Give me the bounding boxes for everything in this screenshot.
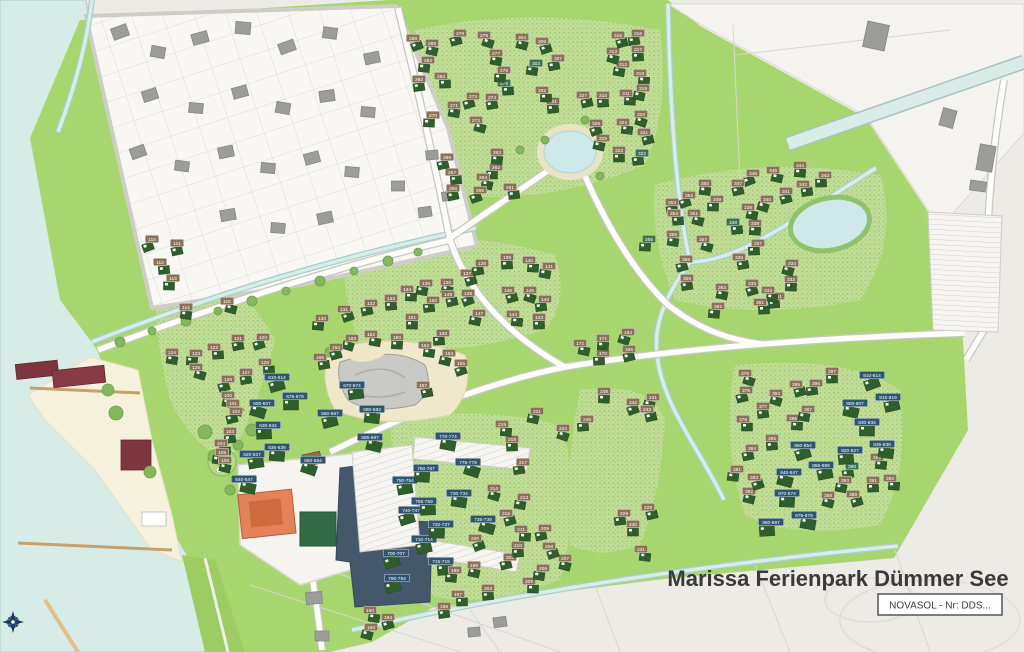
svg-text:209: 209 [541,526,549,532]
svg-text:194: 194 [384,615,392,621]
svg-text:346: 346 [749,171,757,177]
svg-text:134: 134 [403,287,411,293]
svg-text:267: 267 [448,170,456,176]
svg-text:338: 338 [751,221,759,227]
svg-text:310: 310 [599,93,607,99]
svg-text:218: 218 [508,437,516,443]
svg-text:274: 274 [488,95,496,101]
svg-text:610-614: 610-614 [268,375,286,381]
svg-text:157: 157 [419,383,427,389]
svg-text:229: 229 [620,511,628,517]
svg-text:870-874: 870-874 [778,491,796,497]
tree [383,256,393,266]
svg-text:152: 152 [421,343,429,349]
svg-text:219: 219 [498,422,506,428]
house-marker: 391 [866,476,880,492]
svg-text:840-847: 840-847 [780,470,798,476]
svg-text:397: 397 [828,369,836,375]
tree [541,136,549,144]
house-marker: 274 [485,93,499,110]
svg-text:217: 217 [519,460,527,466]
gray-building [426,150,439,160]
svg-text:143: 143 [535,315,543,321]
svg-text:103: 103 [226,429,234,435]
svg-text:356: 356 [669,232,677,238]
house-marker: 397 [825,367,839,383]
house-marker: 271 [447,101,461,118]
svg-text:735-739: 735-739 [474,517,492,523]
gray-building [315,631,329,641]
svg-text:128: 128 [261,360,269,366]
svg-text:388: 388 [824,493,832,499]
svg-text:800-807: 800-807 [846,401,864,407]
svg-text:288: 288 [409,36,417,42]
svg-text:248: 248 [600,389,608,395]
house-marker: 218 [505,435,519,451]
svg-text:121: 121 [234,336,242,342]
gray-building [271,222,286,233]
house-marker: 359 [680,274,694,291]
svg-text:270: 270 [429,113,437,119]
svg-text:222: 222 [559,426,567,432]
tree [596,172,604,180]
svg-text:730-734: 730-734 [450,491,468,497]
tree [225,485,235,495]
svg-text:660-667: 660-667 [321,411,339,417]
tree [148,327,156,335]
tree [282,287,290,295]
gray-building [361,106,376,117]
svg-text:390: 390 [848,464,856,470]
svg-text:101: 101 [229,401,237,407]
svg-text:354: 354 [670,211,678,217]
house-marker: 139 [500,253,514,269]
svg-text:102: 102 [232,409,240,415]
svg-text:348: 348 [729,220,737,226]
svg-text:339: 339 [744,205,752,211]
svg-text:351: 351 [690,211,698,217]
gray-building [468,627,481,637]
svg-text:311: 311 [622,91,630,97]
house-marker: 385 [765,434,779,450]
svg-text:392: 392 [886,476,894,482]
svg-text:133: 133 [387,296,395,302]
svg-text:203: 203 [484,586,492,592]
svg-text:243: 243 [643,407,651,413]
svg-text:355: 355 [645,237,653,243]
svg-text:323: 323 [615,148,623,154]
svg-text:147: 147 [475,311,483,317]
svg-text:313: 313 [609,49,617,55]
svg-text:158: 158 [439,331,447,337]
svg-text:120: 120 [259,335,267,341]
svg-text:261: 261 [506,185,514,191]
svg-text:875-879: 875-879 [795,513,813,519]
svg-text:343: 343 [821,173,829,179]
svg-text:715-719: 715-719 [432,559,450,565]
svg-text:675-679: 675-679 [286,394,304,400]
novasol-code-text: NOVASOL - Nr: DDS... [889,601,991,612]
house-marker: 377 [756,402,770,418]
svg-text:340: 340 [763,197,771,203]
svg-text:378: 378 [739,417,747,423]
svg-text:198: 198 [451,568,459,574]
svg-text:279: 279 [456,31,464,37]
svg-text:815-819: 815-819 [879,395,897,401]
svg-text:322: 322 [638,151,646,157]
svg-text:111: 111 [173,241,181,247]
svg-text:144: 144 [509,312,517,318]
gray-building [261,162,276,173]
house-marker: 248 [597,387,611,403]
svg-text:230: 230 [629,522,637,528]
gray-building [322,27,337,40]
house-marker: 114 [179,303,193,320]
svg-text:315: 315 [614,33,622,39]
svg-text:100: 100 [224,393,232,399]
svg-text:830-834: 830-834 [858,420,876,426]
svg-text:283: 283 [437,74,445,80]
svg-text:139: 139 [503,255,511,261]
svg-text:326: 326 [592,121,600,127]
svg-text:142: 142 [541,297,549,303]
gray-building [418,206,432,218]
svg-text:349: 349 [713,197,721,203]
svg-text:164: 164 [332,345,340,351]
svg-text:148: 148 [464,291,472,297]
svg-text:375: 375 [741,371,749,377]
svg-text:391: 391 [869,478,877,484]
svg-text:171: 171 [599,336,607,342]
gray-building [220,208,237,221]
house-marker: 151 [405,313,419,329]
gray-building [150,45,166,58]
svg-text:344: 344 [796,163,804,169]
svg-text:221: 221 [533,409,541,415]
svg-text:106: 106 [221,458,229,464]
svg-text:325: 325 [599,136,607,142]
svg-text:207: 207 [561,556,569,562]
tree [414,248,422,256]
gray-building [493,616,507,628]
svg-text:154: 154 [445,351,453,357]
svg-text:266: 266 [449,186,457,192]
svg-text:359: 359 [683,276,691,282]
svg-text:264: 264 [479,175,487,181]
svg-text:630-634: 630-634 [259,423,277,429]
svg-text:242: 242 [629,400,637,406]
svg-text:123: 123 [192,351,200,357]
tree [581,116,589,124]
svg-text:228: 228 [644,505,652,511]
svg-text:362: 362 [714,304,722,310]
svg-text:162: 162 [367,332,375,338]
svg-text:770-774: 770-774 [439,434,457,440]
svg-text:190: 190 [366,608,374,614]
tree [115,337,125,347]
svg-text:335: 335 [748,281,756,287]
svg-text:820-827: 820-827 [841,448,859,454]
svg-text:363: 363 [718,285,726,291]
svg-text:720-727: 720-727 [432,522,450,528]
svg-text:342: 342 [799,182,807,188]
svg-text:600-607: 600-607 [253,401,271,407]
svg-text:211: 211 [517,527,525,533]
gray-building [174,160,189,172]
svg-text:271: 271 [450,103,458,109]
house-marker: 127 [239,368,253,385]
svg-text:278: 278 [480,33,488,39]
svg-text:318: 318 [636,71,644,77]
tree [315,276,325,286]
tree [247,296,257,306]
svg-text:383: 383 [750,475,758,481]
svg-text:210: 210 [514,543,522,549]
house-marker: 350 [698,179,712,196]
svg-text:155: 155 [457,361,465,367]
svg-text:755-759: 755-759 [415,499,433,505]
house-marker: 263 [490,148,504,164]
svg-text:273: 273 [469,94,477,100]
svg-text:635-639: 635-639 [268,445,286,451]
svg-text:860-867: 860-867 [762,520,780,526]
svg-text:353: 353 [668,200,676,206]
svg-text:670-674: 670-674 [343,383,361,389]
svg-text:336: 336 [735,255,743,261]
svg-text:272: 272 [472,118,480,124]
svg-text:332: 332 [787,277,795,283]
svg-text:141: 141 [545,264,553,270]
svg-text:130: 130 [318,316,326,322]
svg-text:333: 333 [764,288,772,294]
svg-text:131: 131 [340,307,348,313]
svg-text:700-707: 700-707 [387,551,405,557]
svg-text:376: 376 [742,388,750,394]
map-title: Marissa Ferienpark Dümmer See [667,566,1008,591]
svg-text:231: 231 [637,547,645,553]
svg-text:124: 124 [168,350,176,356]
svg-text:306: 306 [538,39,546,45]
svg-text:384: 384 [748,446,756,452]
eventcenter-building [300,512,336,546]
svg-text:324: 324 [619,120,627,126]
house-marker: 356 [666,230,680,247]
svg-text:105: 105 [218,450,226,456]
gray-building [235,21,251,34]
svg-text:387: 387 [804,407,812,413]
svg-text:160: 160 [393,335,401,341]
house-marker: 317 [631,45,645,61]
svg-text:241: 241 [649,395,657,401]
svg-text:775-779: 775-779 [459,460,477,466]
svg-text:810-814: 810-814 [863,373,881,379]
house-marker: 230 [626,520,640,536]
svg-text:312: 312 [619,62,627,68]
svg-text:319: 319 [639,86,647,92]
gray-building [189,102,204,113]
svg-text:246: 246 [583,417,591,423]
svg-text:640-647: 640-647 [235,477,253,483]
svg-text:199: 199 [470,563,478,569]
svg-text:137: 137 [463,271,471,277]
house-marker: 171 [596,334,610,350]
svg-text:170: 170 [599,351,607,357]
svg-text:151: 151 [408,315,416,321]
svg-text:215: 215 [502,511,510,517]
svg-text:298: 298 [443,155,451,161]
svg-text:284: 284 [424,58,432,64]
svg-text:197: 197 [454,592,462,598]
svg-text:113: 113 [169,276,177,282]
house-marker: 210 [511,541,525,557]
wassersport-building [142,512,166,526]
svg-text:740-747: 740-747 [402,508,420,514]
svg-text:685-687: 685-687 [361,435,379,441]
svg-text:138: 138 [478,261,486,267]
svg-text:213: 213 [520,495,528,501]
house-marker: 282 [412,75,426,92]
gray-building [319,90,335,103]
svg-text:396: 396 [812,381,820,387]
svg-text:132: 132 [367,301,375,307]
gray-building [392,181,405,191]
tree [516,146,524,154]
svg-text:327: 327 [579,93,587,99]
svg-text:125: 125 [192,365,200,371]
svg-text:303: 303 [532,61,540,67]
svg-text:206: 206 [539,566,547,572]
svg-text:196: 196 [440,604,448,610]
gray-building [969,180,986,192]
svg-text:377: 377 [759,404,767,410]
svg-text:263: 263 [493,150,501,156]
svg-text:135: 135 [422,281,430,287]
svg-text:115: 115 [223,299,231,305]
svg-text:277: 277 [492,51,500,57]
svg-text:114: 114 [182,305,190,311]
tree [102,384,114,396]
house-marker: 143 [532,313,546,329]
svg-text:341: 341 [782,189,790,195]
svg-text:112: 112 [156,260,164,266]
svg-text:855-859: 855-859 [812,463,830,469]
svg-text:347: 347 [734,181,742,187]
svg-text:352: 352 [685,193,693,199]
svg-text:145: 145 [526,288,534,294]
tree [109,406,123,420]
svg-text:172: 172 [576,341,584,347]
svg-text:317: 317 [634,47,642,53]
svg-text:393: 393 [841,478,849,484]
svg-text:104: 104 [217,441,225,447]
svg-text:394: 394 [772,391,780,397]
house-marker: 124 [165,348,179,365]
restaurant-building [238,489,296,538]
tree [144,466,156,478]
svg-text:835-839: 835-839 [873,442,891,448]
svg-text:357: 357 [699,237,707,243]
svg-text:680-683: 680-683 [363,407,381,413]
svg-text:382: 382 [745,489,753,495]
svg-text:149: 149 [444,292,452,298]
tree [350,267,358,275]
svg-text:350: 350 [701,181,709,187]
svg-text:337: 337 [754,241,762,247]
house-marker: 344 [793,161,807,177]
map-canvas: 1101111121131141151201211221231241251261… [0,0,1024,652]
svg-text:358: 358 [682,257,690,263]
svg-text:150: 150 [429,298,437,304]
svg-text:193: 193 [367,625,375,631]
svg-text:208: 208 [545,544,553,550]
house-marker: 196 [437,602,451,619]
svg-text:110: 110 [148,237,156,243]
svg-text:205: 205 [525,579,533,585]
svg-text:320: 320 [637,112,645,118]
svg-text:184: 184 [624,330,632,336]
house-marker: 203 [481,584,495,600]
tree [214,307,222,315]
svg-text:620-627: 620-627 [243,452,261,458]
svg-text:345: 345 [769,168,777,174]
svg-text:265: 265 [476,188,484,194]
svg-text:316: 316 [634,31,642,37]
svg-text:334: 334 [788,261,796,267]
strandbar-building [121,440,151,470]
gray-building [345,166,360,177]
house-marker: 310 [596,91,610,107]
svg-text:185: 185 [625,347,633,353]
svg-text:276: 276 [500,68,508,74]
svg-text:285: 285 [428,41,436,47]
svg-text:750-754: 750-754 [396,478,414,484]
tree [198,425,212,439]
house-marker: 160 [390,333,404,349]
svg-text:361: 361 [756,300,764,306]
house-marker: 332 [784,275,798,291]
svg-text:321: 321 [640,130,648,136]
gray-building [306,591,323,604]
svg-text:146: 146 [504,288,512,294]
svg-text:385: 385 [768,436,776,442]
svg-text:122: 122 [210,345,218,351]
svg-text:282: 282 [415,77,423,83]
svg-text:140: 140 [525,258,533,264]
svg-text:850-854: 850-854 [794,443,812,449]
svg-text:136: 136 [443,280,451,286]
svg-text:127: 127 [242,370,250,376]
svg-text:165: 165 [316,355,324,361]
park-map: 1101111121131141151201211221231241251261… [0,0,1024,652]
svg-text:262: 262 [492,165,500,171]
svg-text:386: 386 [789,416,797,422]
house-marker: 323 [612,146,626,162]
svg-text:389: 389 [849,492,857,498]
gray-building [275,101,291,114]
svg-text:395: 395 [792,382,800,388]
svg-text:304: 304 [518,35,526,41]
svg-text:302: 302 [538,88,546,94]
svg-text:307: 307 [554,56,562,62]
svg-text:163: 163 [348,336,356,342]
svg-text:214: 214 [490,486,498,492]
house-marker: 133 [384,294,398,310]
house-marker: 338 [748,219,762,235]
svg-text:650-654: 650-654 [304,458,322,464]
svg-text:381: 381 [733,467,741,473]
svg-text:126: 126 [224,377,232,383]
svg-text:200: 200 [471,536,479,542]
